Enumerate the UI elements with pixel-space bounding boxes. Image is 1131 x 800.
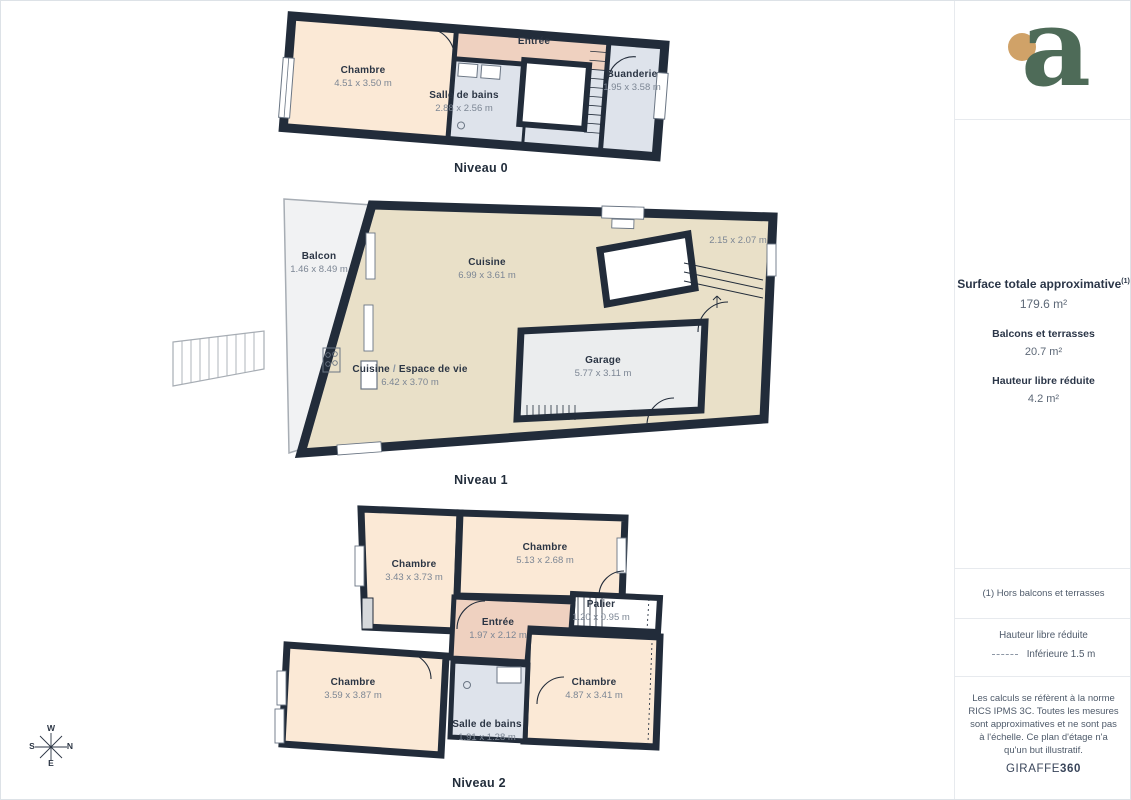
surface-summary: Surface totale approximative(1) 179.6 m²… <box>955 277 1131 405</box>
legend-item-label: Inférieure 1.5 m <box>1027 649 1096 660</box>
compass-star <box>35 733 67 761</box>
stairwell-void-n0 <box>519 60 589 129</box>
room-label-chambre-n2-tl: Chambre 3.43 x 3.73 m <box>385 559 443 584</box>
floorplan-niveau-1 <box>173 199 776 455</box>
compass-north-label: N <box>67 741 73 751</box>
sink-icon <box>481 65 501 79</box>
balconies-title: Balcons et terrasses <box>955 328 1131 340</box>
surface-total-title: Surface totale approximative(1) <box>955 277 1131 291</box>
reduced-height-value: 4.2 m² <box>955 393 1131 405</box>
room-label-sdb-n0: Salle de bains 2.88 x 2.56 m <box>429 90 499 115</box>
floor-title-niveau-1: Niveau 1 <box>454 473 508 487</box>
room-label-chambre-n2-tr: Chambre 5.13 x 2.68 m <box>516 542 574 567</box>
window <box>366 233 375 279</box>
logo-letter: a <box>1021 0 1091 102</box>
window <box>617 538 626 573</box>
brand-wordmark: GIRAFFE360 <box>955 763 1131 775</box>
floorplan-canvas <box>1 1 954 800</box>
legend: Hauteur libre réduite Inférieure 1.5 m <box>955 630 1131 660</box>
footnote-text: (1) Hors balcons et terrasses <box>955 588 1131 599</box>
room-label-chambre-n2-br: Chambre 4.87 x 3.41 m <box>565 677 623 702</box>
brand-logo: a <box>955 1 1131 120</box>
floor-title-niveau-2: Niveau 2 <box>452 776 506 790</box>
room-label-espace-de-vie-n1: Cuisine / Espace de vie 6.42 x 3.70 m <box>352 364 467 389</box>
divider <box>955 568 1131 569</box>
room-label-chambre-n0: Chambre 4.51 x 3.50 m <box>334 65 392 90</box>
room-label-palier-n2: Palier 1.20 x 0.95 m <box>572 599 630 624</box>
wall-niche <box>602 206 644 219</box>
wall-niche <box>362 598 373 629</box>
compass-west-label: W <box>47 723 55 733</box>
surface-total-value: 179.6 m² <box>955 297 1131 311</box>
room-label-entree-n0: Entrée <box>518 36 550 48</box>
info-sidebar: a Surface totale approximative(1) 179.6 … <box>954 1 1131 799</box>
window <box>364 305 373 351</box>
window <box>767 244 776 276</box>
room-label-chambre-n2-bl: Chambre 3.59 x 3.87 m <box>324 677 382 702</box>
window <box>275 709 284 743</box>
compass-east-label: E <box>48 758 54 768</box>
room-label-stairroom-n1: 2.15 x 2.07 m <box>709 234 767 247</box>
floorplan-page: Chambre 4.51 x 3.50 m Entrée Salle de ba… <box>0 0 1131 800</box>
window <box>277 671 286 705</box>
room-label-balcon-n1: Balcon 1.46 x 8.49 m <box>290 251 348 276</box>
disclaimer-text: Les calculs se réfèrent à la norme RICS … <box>968 692 1119 757</box>
window <box>355 546 364 586</box>
footnote-marker: (1) <box>1121 278 1130 285</box>
dashed-line-sample <box>992 654 1018 655</box>
room-label-sdb-n2: Salle de bains 1.91 x 1.28 m <box>452 719 522 744</box>
legend-row: Inférieure 1.5 m <box>955 649 1131 660</box>
floor-title-niveau-0: Niveau 0 <box>454 161 508 175</box>
void-room-n1 <box>600 234 695 304</box>
room-label-buanderie-n0: Buanderie 1.95 x 3.58 m <box>603 69 661 94</box>
sink-icon <box>458 63 478 77</box>
divider <box>955 676 1131 677</box>
wall-niche <box>612 219 634 229</box>
exterior-stairs-n1 <box>173 331 264 386</box>
reduced-height-title: Hauteur libre réduite <box>955 375 1131 387</box>
balconies-value: 20.7 m² <box>955 346 1131 358</box>
room-label-garage-n1: Garage 5.77 x 3.11 m <box>575 355 632 380</box>
sink-icon <box>497 667 521 683</box>
room-label-cuisine-n1: Cuisine 6.99 x 3.61 m <box>458 257 516 282</box>
compass-south-label: S <box>29 741 35 751</box>
room-label-entree-n2: Entrée 1.97 x 2.12 m <box>469 617 527 642</box>
divider <box>955 618 1131 619</box>
legend-title: Hauteur libre réduite <box>955 630 1131 641</box>
